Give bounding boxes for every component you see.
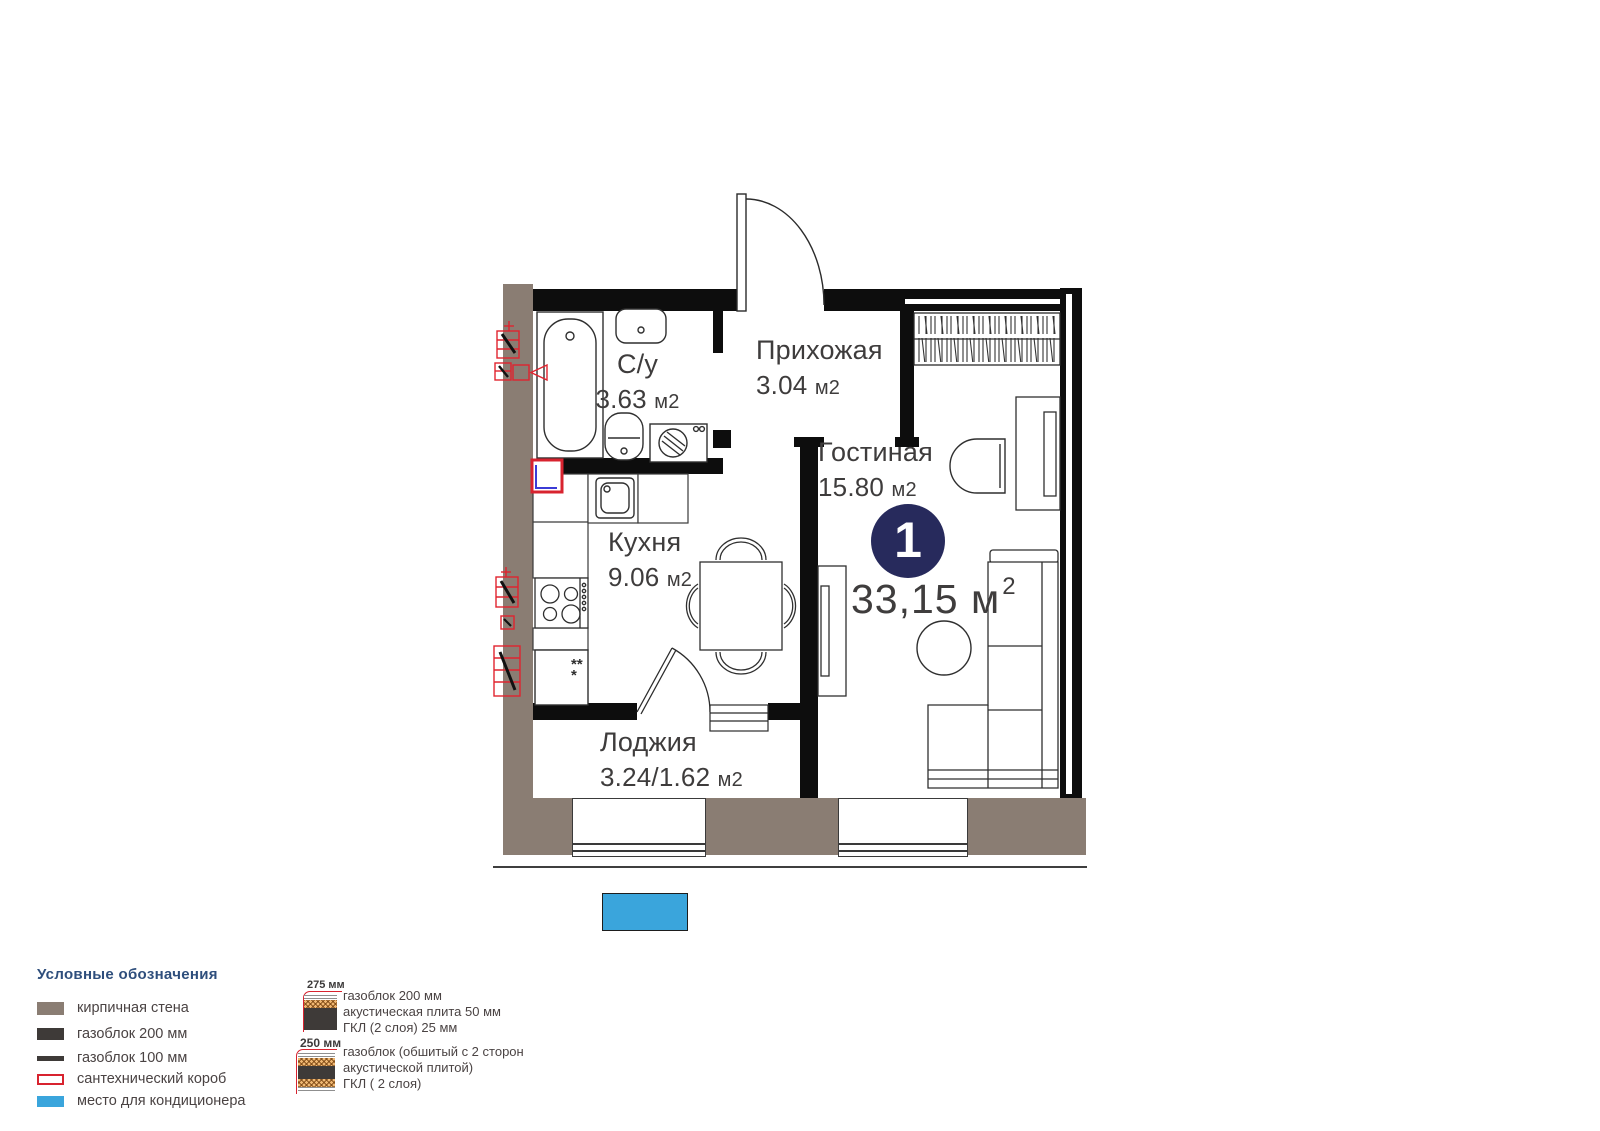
acoustic-layer <box>298 1079 335 1087</box>
room-label-loggia: Лоджия 3.24/1.62 м2 <box>600 728 743 791</box>
wall-hallway-living-divider <box>900 311 914 437</box>
window-loggia-facade <box>572 798 706 857</box>
gasblock-layer <box>298 1066 335 1079</box>
wall-section-line: акустической плитой) <box>343 1060 524 1076</box>
wall-section-250-swatch <box>298 1053 335 1092</box>
wall-kitchen-living-divider <box>800 437 818 798</box>
gasblock-100-swatch <box>37 1056 64 1061</box>
toilet <box>605 413 643 460</box>
legend-item-plumbing-box: сантехнический короб <box>37 1070 226 1088</box>
wall-loggia-left <box>533 703 637 720</box>
floor-plan-page: С/у 3.63 м2 Прихожая 3.04 м2 Гостиная 15… <box>0 0 1600 1131</box>
room-name: Гостиная <box>818 438 933 468</box>
facade-ground-line <box>493 866 1087 868</box>
wall-section-line: ГКЛ ( 2 слоя) <box>343 1076 524 1092</box>
legend-item-brick-wall: кирпичная стена <box>37 999 189 1017</box>
dining-table <box>686 538 795 674</box>
room-area: 3.24/1.62 м2 <box>600 763 743 792</box>
room-area: 3.63 м2 <box>575 385 700 414</box>
wall-section-line: газоблок (обшитый с 2 сторон <box>343 1044 524 1060</box>
legend-item-label: газоблок 100 мм <box>77 1050 187 1066</box>
wall-section-250-text: газоблок (обшитый с 2 сторон акустическо… <box>343 1044 524 1092</box>
wall-loggia-right <box>768 703 800 720</box>
brick-wall-swatch <box>37 1002 64 1015</box>
room-label-bathroom: С/у 3.63 м2 <box>575 350 700 413</box>
window-sill-line <box>572 843 706 845</box>
kitchen-sink <box>596 478 634 518</box>
room-name: Кухня <box>608 528 692 558</box>
loggia-door <box>637 648 710 714</box>
wall-section-250-thickness: 250 мм <box>300 1036 341 1050</box>
wall-section-line: газоблок 200 мм <box>343 988 501 1004</box>
plumbing-box-swatch <box>37 1074 64 1085</box>
coffee-table <box>917 621 971 675</box>
legend-item-gasblock-100: газоблок 100 мм <box>37 1049 187 1067</box>
wall-section-line: ГКЛ (2 слоя) 25 мм <box>343 1020 501 1036</box>
window-sill-line <box>572 850 706 852</box>
washing-machine <box>650 424 707 462</box>
wall-section-275-swatch <box>304 995 337 1030</box>
plumbing-box-symbol <box>532 460 562 492</box>
legend-item-gasblock-200: газоблок 200 мм <box>37 1025 187 1043</box>
wall-bathroom-right <box>713 311 723 353</box>
legend-title: Условные обозначения <box>37 966 218 983</box>
legend-item-label: сантехнический короб <box>77 1071 226 1087</box>
legend-item-label: место для кондиционера <box>77 1093 245 1109</box>
room-label-hallway: Прихожая 3.04 м2 <box>756 336 883 399</box>
acoustic-layer <box>304 1000 337 1008</box>
room-area: 15.80 м2 <box>818 473 933 502</box>
wall-bathroom-bottom <box>560 458 723 474</box>
window-living-facade <box>838 798 968 857</box>
entrance-door <box>737 194 824 311</box>
acoustic-layer <box>298 1058 335 1066</box>
brick-wall-left <box>503 284 533 855</box>
wall-right-cavity-line <box>1066 294 1072 794</box>
wardrobe <box>914 313 1060 365</box>
wall-top-left-segment <box>533 289 737 311</box>
gkl-layer <box>298 1087 335 1092</box>
wall-section-275-thickness: 275 мм <box>307 979 345 991</box>
desk-chair <box>950 439 1005 493</box>
wall-top-cavity-line <box>905 299 1075 304</box>
room-area: 9.06 м2 <box>608 563 692 592</box>
gasblock-200-swatch <box>37 1028 64 1040</box>
bathroom-sink <box>616 309 666 343</box>
window-sill-line <box>838 850 968 852</box>
ac-place-box <box>602 893 688 931</box>
room-name: Лоджия <box>600 728 743 758</box>
room-name: Прихожая <box>756 336 883 366</box>
stove <box>535 578 588 628</box>
fridge-mark: *** <box>571 659 583 681</box>
room-area: 3.04 м2 <box>756 371 883 400</box>
ac-place-swatch <box>37 1096 64 1107</box>
wall-bathroom-door-stub <box>713 430 731 448</box>
room-name: С/у <box>575 350 700 380</box>
legend-item-label: кирпичная стена <box>77 1000 189 1016</box>
legend-item-ac-place: место для кондиционера <box>37 1092 245 1110</box>
total-area-label: 33,15 м2 <box>851 576 1015 623</box>
wall-section-275-text: газоблок 200 мм акустическая плита 50 мм… <box>343 988 501 1036</box>
legend-item-label: газоблок 200 мм <box>77 1026 187 1042</box>
window-sill-line <box>838 843 968 845</box>
room-label-kitchen: Кухня 9.06 м2 <box>608 528 692 591</box>
tv-unit <box>818 566 846 696</box>
room-label-living: Гостиная 15.80 м2 <box>818 438 933 501</box>
rooms-count-badge: 1 <box>871 504 945 578</box>
desk <box>1016 397 1060 510</box>
gasblock-layer <box>304 1008 337 1030</box>
wall-section-line: акустическая плита 50 мм <box>343 1004 501 1020</box>
